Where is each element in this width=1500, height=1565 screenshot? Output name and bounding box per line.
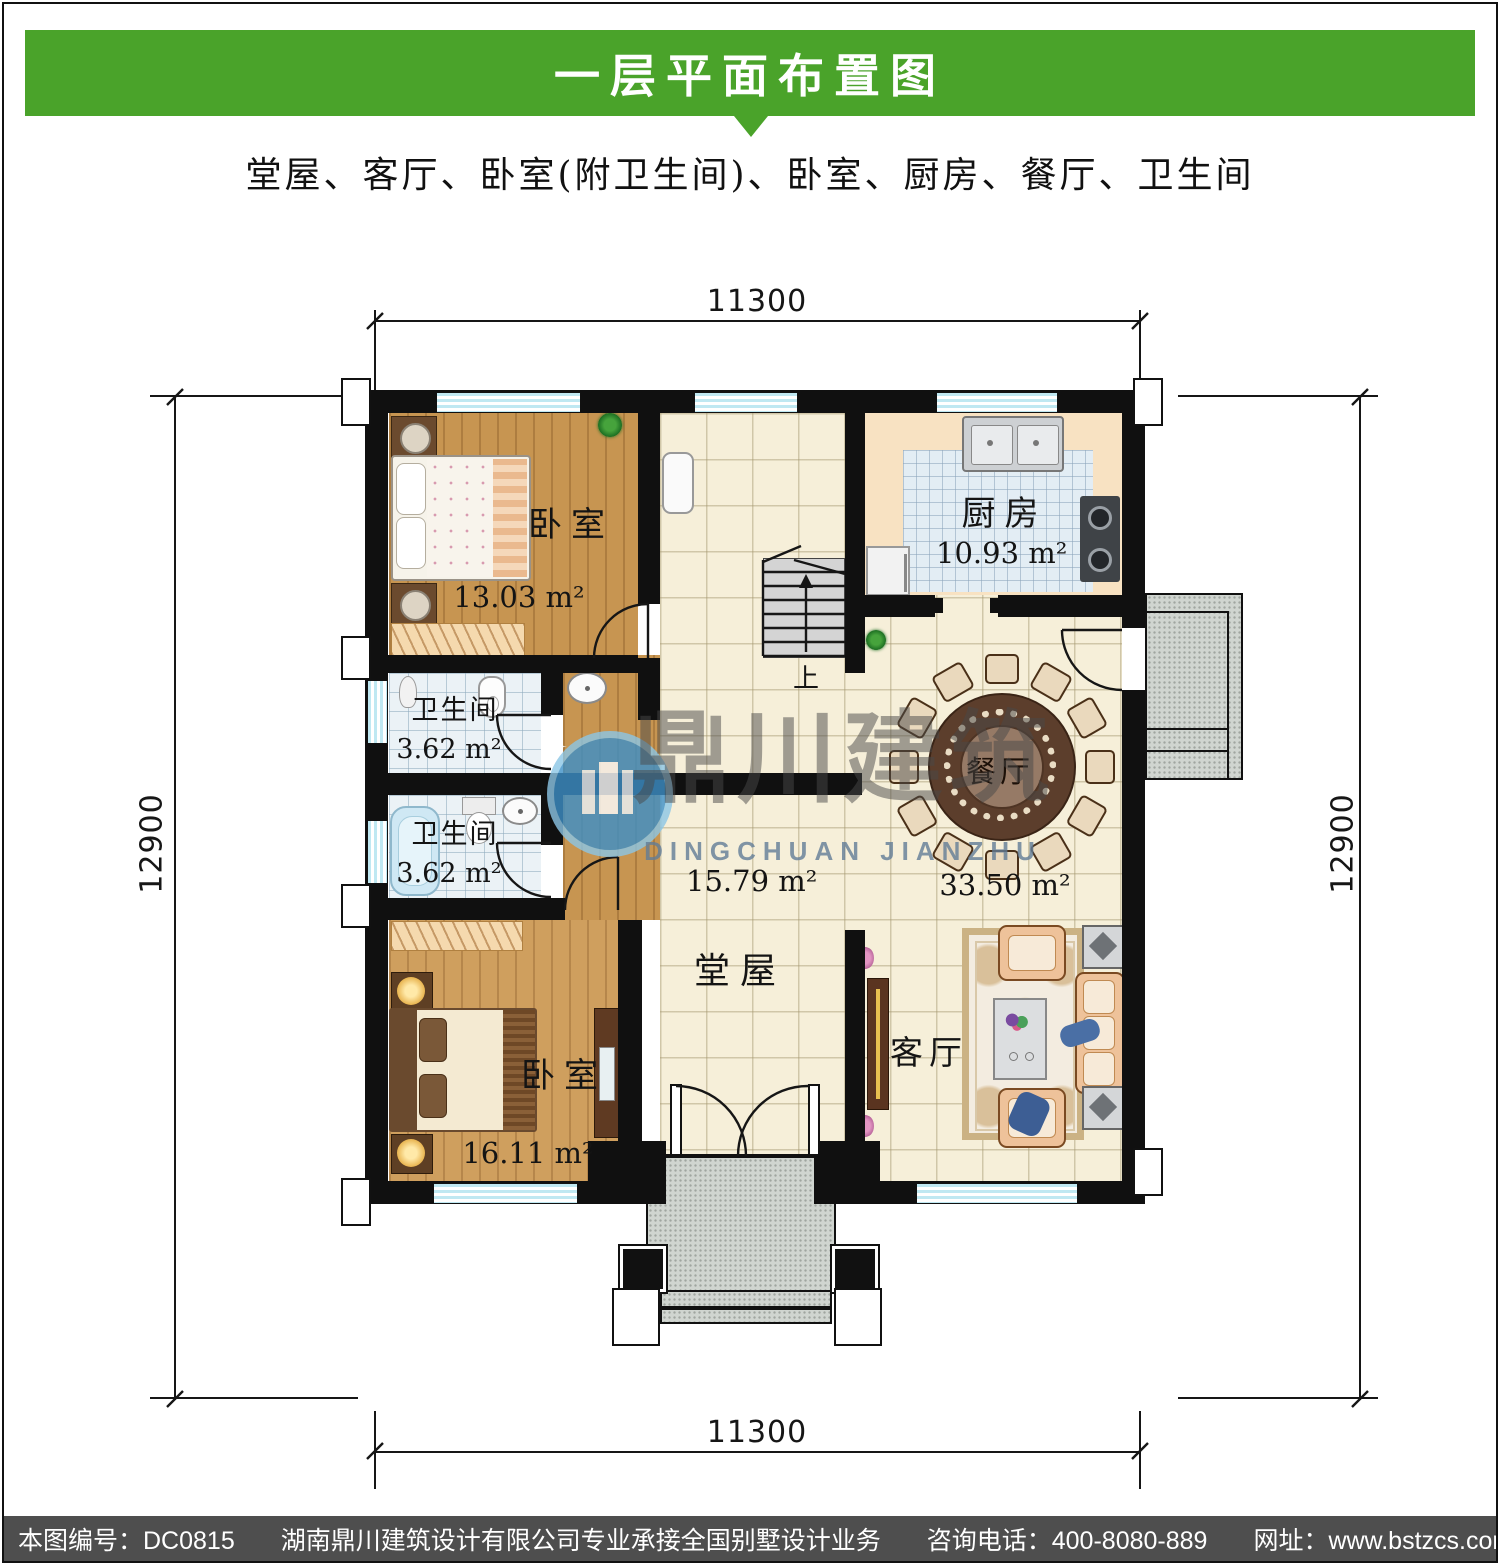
entry-door-leaf xyxy=(670,1084,682,1156)
bed xyxy=(389,1008,537,1132)
staircase xyxy=(763,558,845,658)
window xyxy=(694,392,798,413)
pilaster-tab xyxy=(1133,1148,1163,1196)
dining-area: 33.50 m² xyxy=(938,868,1072,902)
hall-area: 15.79 m² xyxy=(686,864,816,898)
window xyxy=(433,1183,578,1204)
dining-chair xyxy=(985,654,1019,684)
floor-plan-page: 一层平面布置图 堂屋、客厅、卧室(附卫生间)、卧室、厨房、餐厅、卫生间 1130… xyxy=(0,0,1500,1565)
pilaster-tab xyxy=(341,378,371,426)
entry-door-leaf xyxy=(808,1084,820,1156)
wall xyxy=(365,773,862,795)
dim-line-bottom xyxy=(375,1451,1140,1453)
bath2-label: 卫生间 xyxy=(395,812,515,851)
bath1-area: 3.62 m² xyxy=(393,734,505,765)
wall xyxy=(845,930,865,1204)
door-stop xyxy=(935,598,943,613)
porch-column xyxy=(620,1246,666,1292)
porch-column-base xyxy=(834,1288,882,1346)
dim-top-value: 11300 xyxy=(672,284,842,319)
wall xyxy=(998,595,1145,617)
pilaster-tab xyxy=(341,1178,371,1226)
dim-right-value: 12900 xyxy=(1326,761,1361,927)
window xyxy=(936,392,1058,413)
wall xyxy=(541,673,563,715)
landing-step-line xyxy=(1145,750,1227,752)
stove xyxy=(1080,496,1120,582)
bedroom2-area: 16.11 m² xyxy=(460,1136,596,1170)
wall xyxy=(1122,690,1145,1204)
side-table xyxy=(1082,1086,1124,1130)
dim-ext xyxy=(150,395,358,397)
footer-bar: 本图编号：DC0815 湖南鼎川建筑设计有限公司专业承接全国别墅设计业务 咨询电… xyxy=(4,1516,1496,1561)
footer-phone: 咨询电话：400-8080-889 xyxy=(927,1521,1208,1557)
bedroom1-label: 卧室 xyxy=(528,497,612,546)
footer-company: 湖南鼎川建筑设计有限公司专业承接全国别墅设计业务 xyxy=(281,1521,881,1557)
wall xyxy=(845,413,865,673)
sink xyxy=(567,672,607,704)
wardrobe xyxy=(391,921,523,951)
plant-icon xyxy=(598,413,622,437)
entry-step xyxy=(660,1290,832,1308)
nightstand xyxy=(391,416,437,458)
fridge xyxy=(866,546,910,596)
wall xyxy=(638,390,660,604)
tv-cabinet xyxy=(867,978,889,1110)
pilaster-tab xyxy=(341,884,371,928)
porch-column-base xyxy=(612,1288,660,1346)
dim-bottom-value: 11300 xyxy=(672,1415,842,1450)
dining-chair xyxy=(889,750,919,784)
bedroom1-area: 13.03 m² xyxy=(452,580,586,614)
landing-line xyxy=(1145,611,1227,613)
dim-line-top xyxy=(375,320,1140,322)
window xyxy=(367,820,388,884)
bath2-area: 3.62 m² xyxy=(393,858,505,889)
dim-ext xyxy=(374,1411,376,1489)
bedroom2-label: 卧室 xyxy=(520,1048,608,1097)
window xyxy=(916,1183,1078,1204)
threshold-line xyxy=(666,1154,814,1156)
nightstand xyxy=(391,583,437,625)
kitchen-area: 10.93 m² xyxy=(936,536,1066,570)
pilaster-tab xyxy=(1133,378,1163,426)
kitchen-label: 厨房 xyxy=(947,486,1062,535)
wall xyxy=(618,920,642,1181)
dim-ext xyxy=(1178,1397,1378,1399)
wall xyxy=(638,658,660,720)
footer-drawing-code: 本图编号：DC0815 xyxy=(18,1521,235,1557)
dining-label: 餐厅 xyxy=(963,747,1037,791)
room-list-subtitle: 堂屋、客厅、卧室(附卫生间)、卧室、厨房、餐厅、卫生间 xyxy=(0,146,1500,198)
porch-column xyxy=(832,1246,878,1292)
wall xyxy=(365,898,565,920)
living-label: 客厅 xyxy=(890,1026,962,1074)
coffee-table xyxy=(993,998,1047,1080)
nightstand xyxy=(391,972,433,1012)
wall xyxy=(365,390,388,1204)
plant-icon xyxy=(866,630,886,650)
dim-left-value: 12900 xyxy=(135,761,170,927)
entry-step xyxy=(660,1308,832,1324)
wardrobe xyxy=(391,623,525,657)
bath1-label: 卫生间 xyxy=(395,688,515,727)
kitchen-sink xyxy=(962,416,1064,472)
banner-pointer-triangle xyxy=(734,116,768,137)
wall xyxy=(365,655,638,673)
bed xyxy=(391,455,531,581)
footer-website: 网址：www.bstzcs.com xyxy=(1253,1521,1500,1557)
nightstand xyxy=(391,1134,433,1174)
landing-line xyxy=(1227,611,1229,780)
stairs-up-label: 上 xyxy=(792,658,820,695)
water-heater xyxy=(662,452,694,514)
dim-ext xyxy=(150,1397,358,1399)
dim-ext xyxy=(1178,395,1378,397)
window xyxy=(436,392,581,413)
dim-ext xyxy=(1139,1411,1141,1489)
dim-line-left xyxy=(174,396,176,1400)
side-table xyxy=(1082,925,1124,969)
wall xyxy=(845,595,935,617)
title-banner: 一层平面布置图 xyxy=(25,30,1475,116)
armchair xyxy=(998,925,1066,981)
dining-chair xyxy=(1085,750,1115,784)
hall-label: 堂屋 xyxy=(688,942,792,994)
entry-porch-slab xyxy=(646,1156,836,1292)
window xyxy=(367,680,388,744)
dim-ext xyxy=(374,310,376,390)
landing-step-line xyxy=(1145,728,1227,730)
page-title: 一层平面布置图 xyxy=(25,30,1475,116)
pilaster-tab xyxy=(341,636,371,680)
wall xyxy=(541,795,563,845)
door-stop xyxy=(990,598,998,613)
